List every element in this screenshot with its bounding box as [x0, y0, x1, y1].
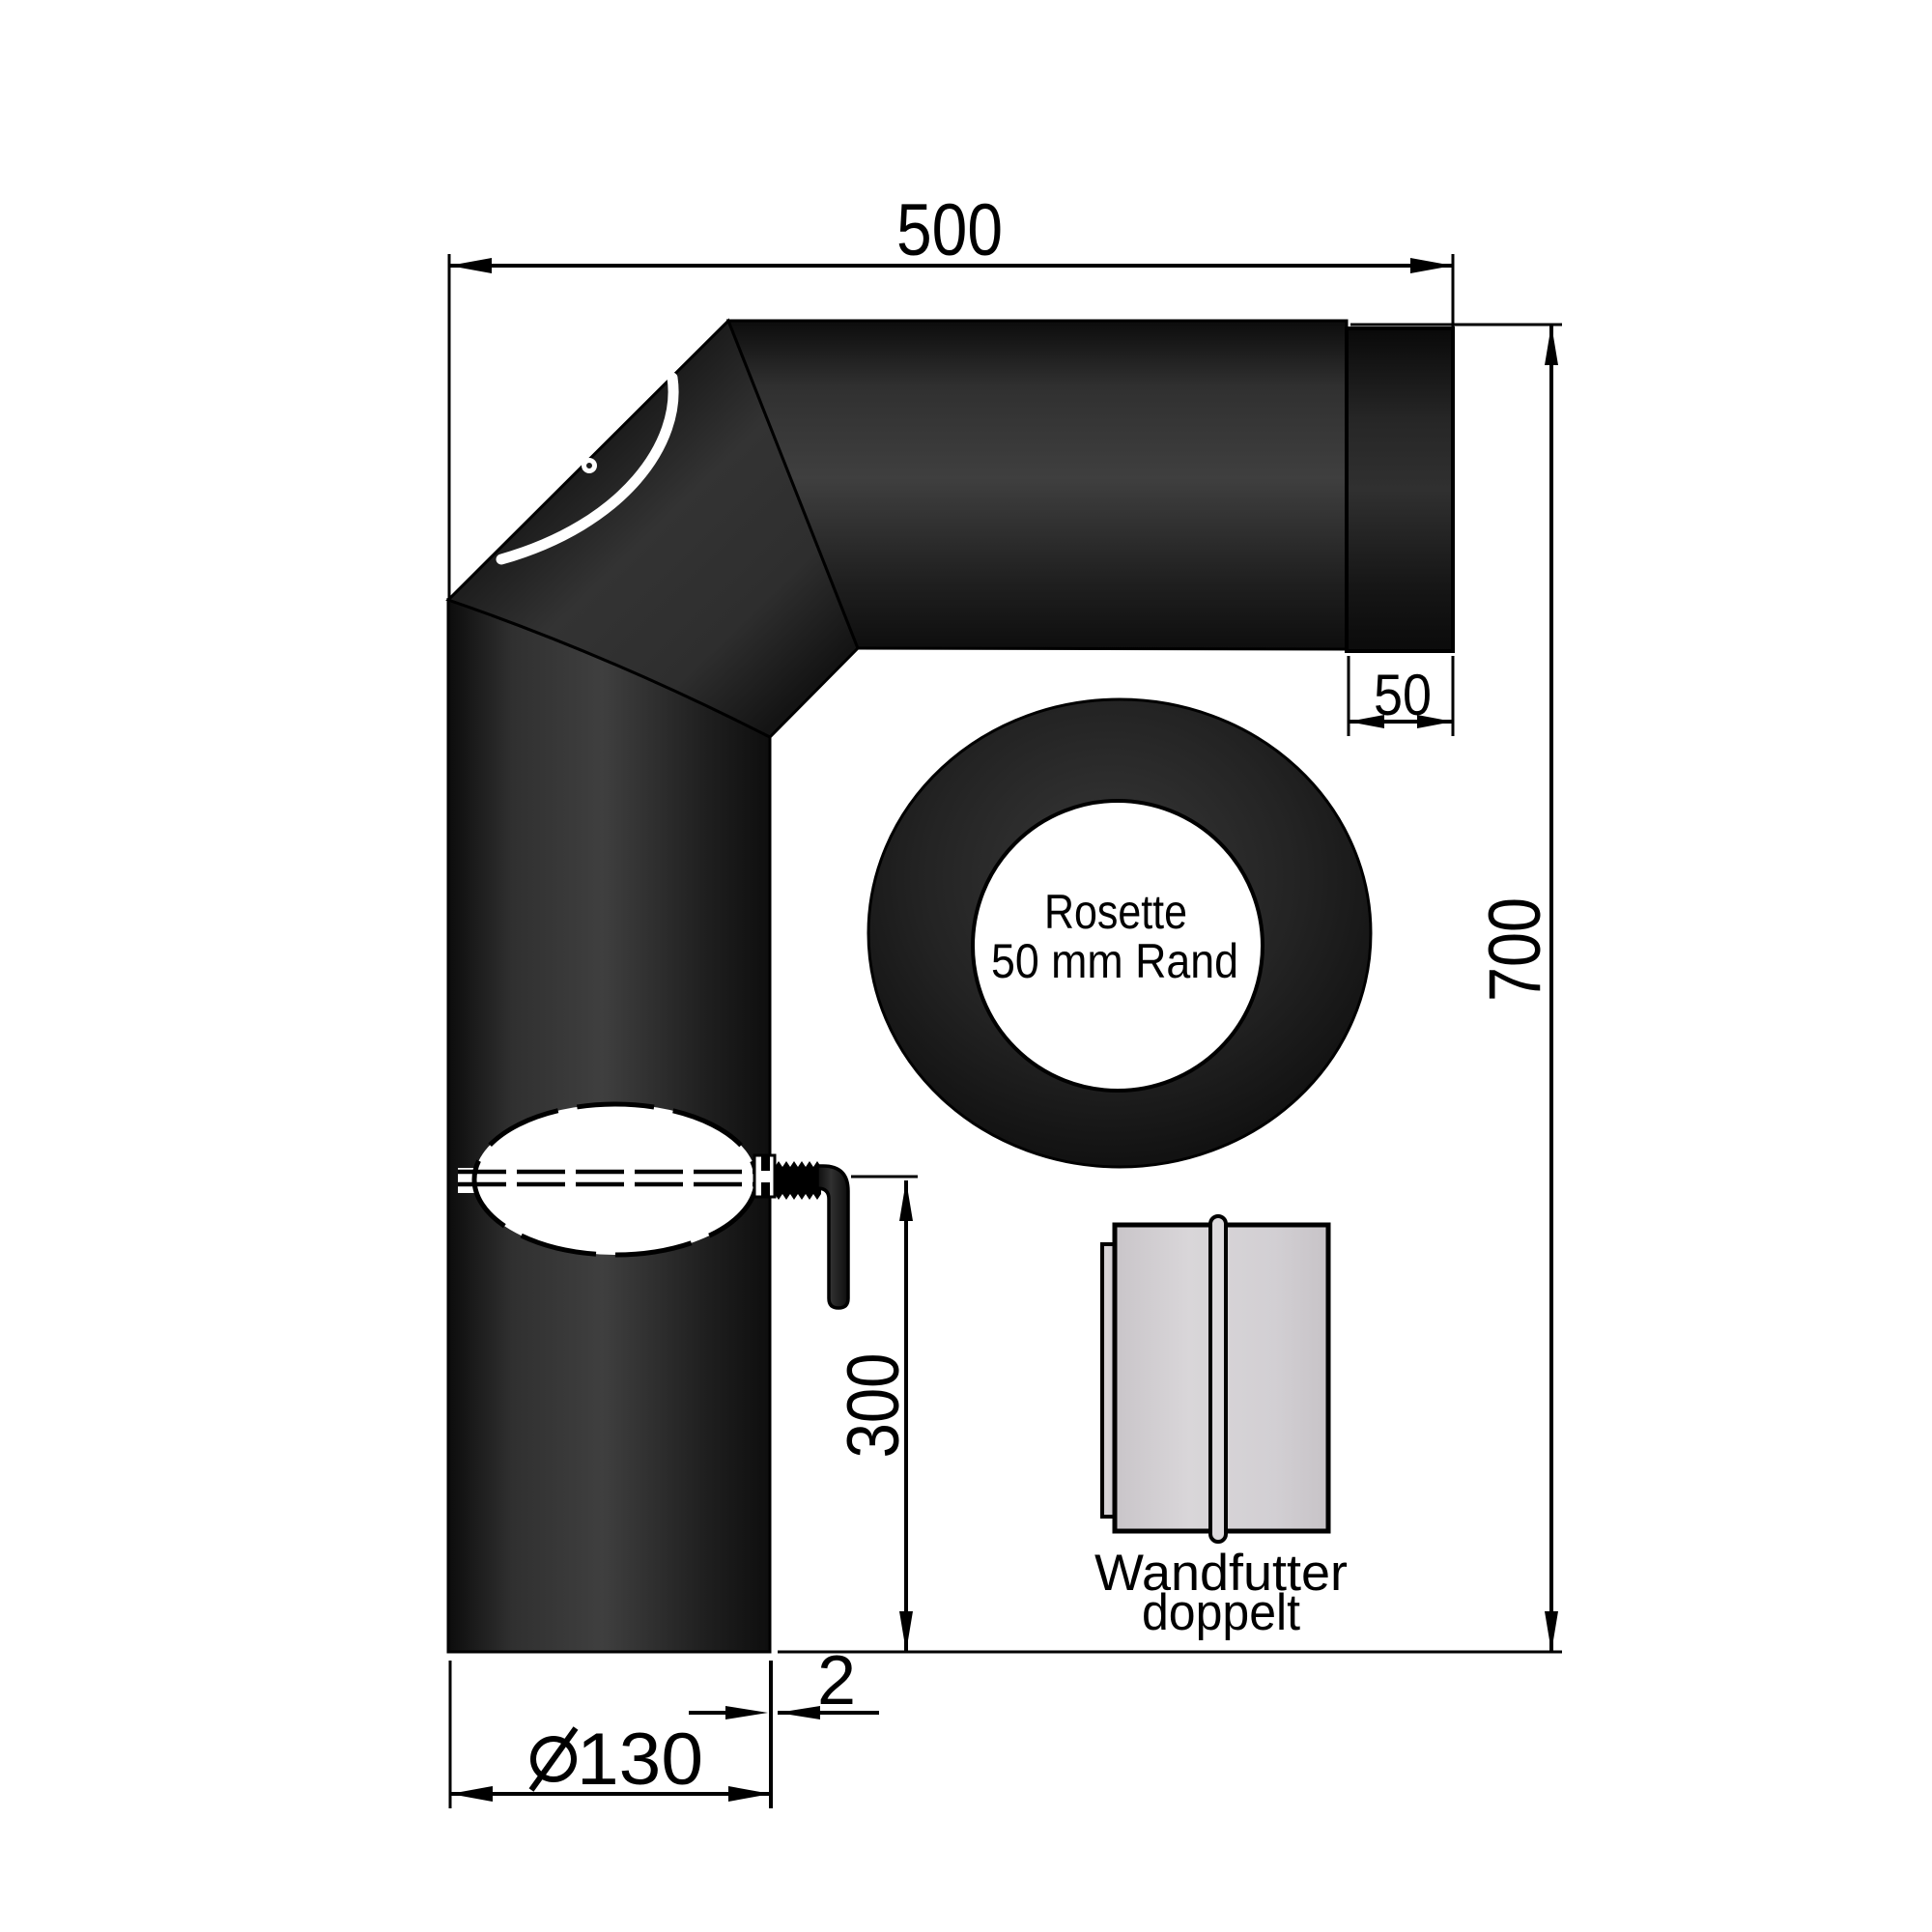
- svg-text:700: 700: [1474, 897, 1556, 1002]
- svg-text:50: 50: [1374, 663, 1432, 727]
- svg-text:Rosette: Rosette: [1044, 885, 1187, 939]
- svg-text:300: 300: [833, 1353, 915, 1459]
- svg-text:2: 2: [817, 1642, 856, 1719]
- svg-text:130: 130: [577, 1719, 703, 1801]
- svg-text:500: 500: [896, 189, 1003, 271]
- svg-text:50 mm Rand: 50 mm Rand: [991, 934, 1238, 988]
- svg-text:doppelt: doppelt: [1142, 1584, 1300, 1641]
